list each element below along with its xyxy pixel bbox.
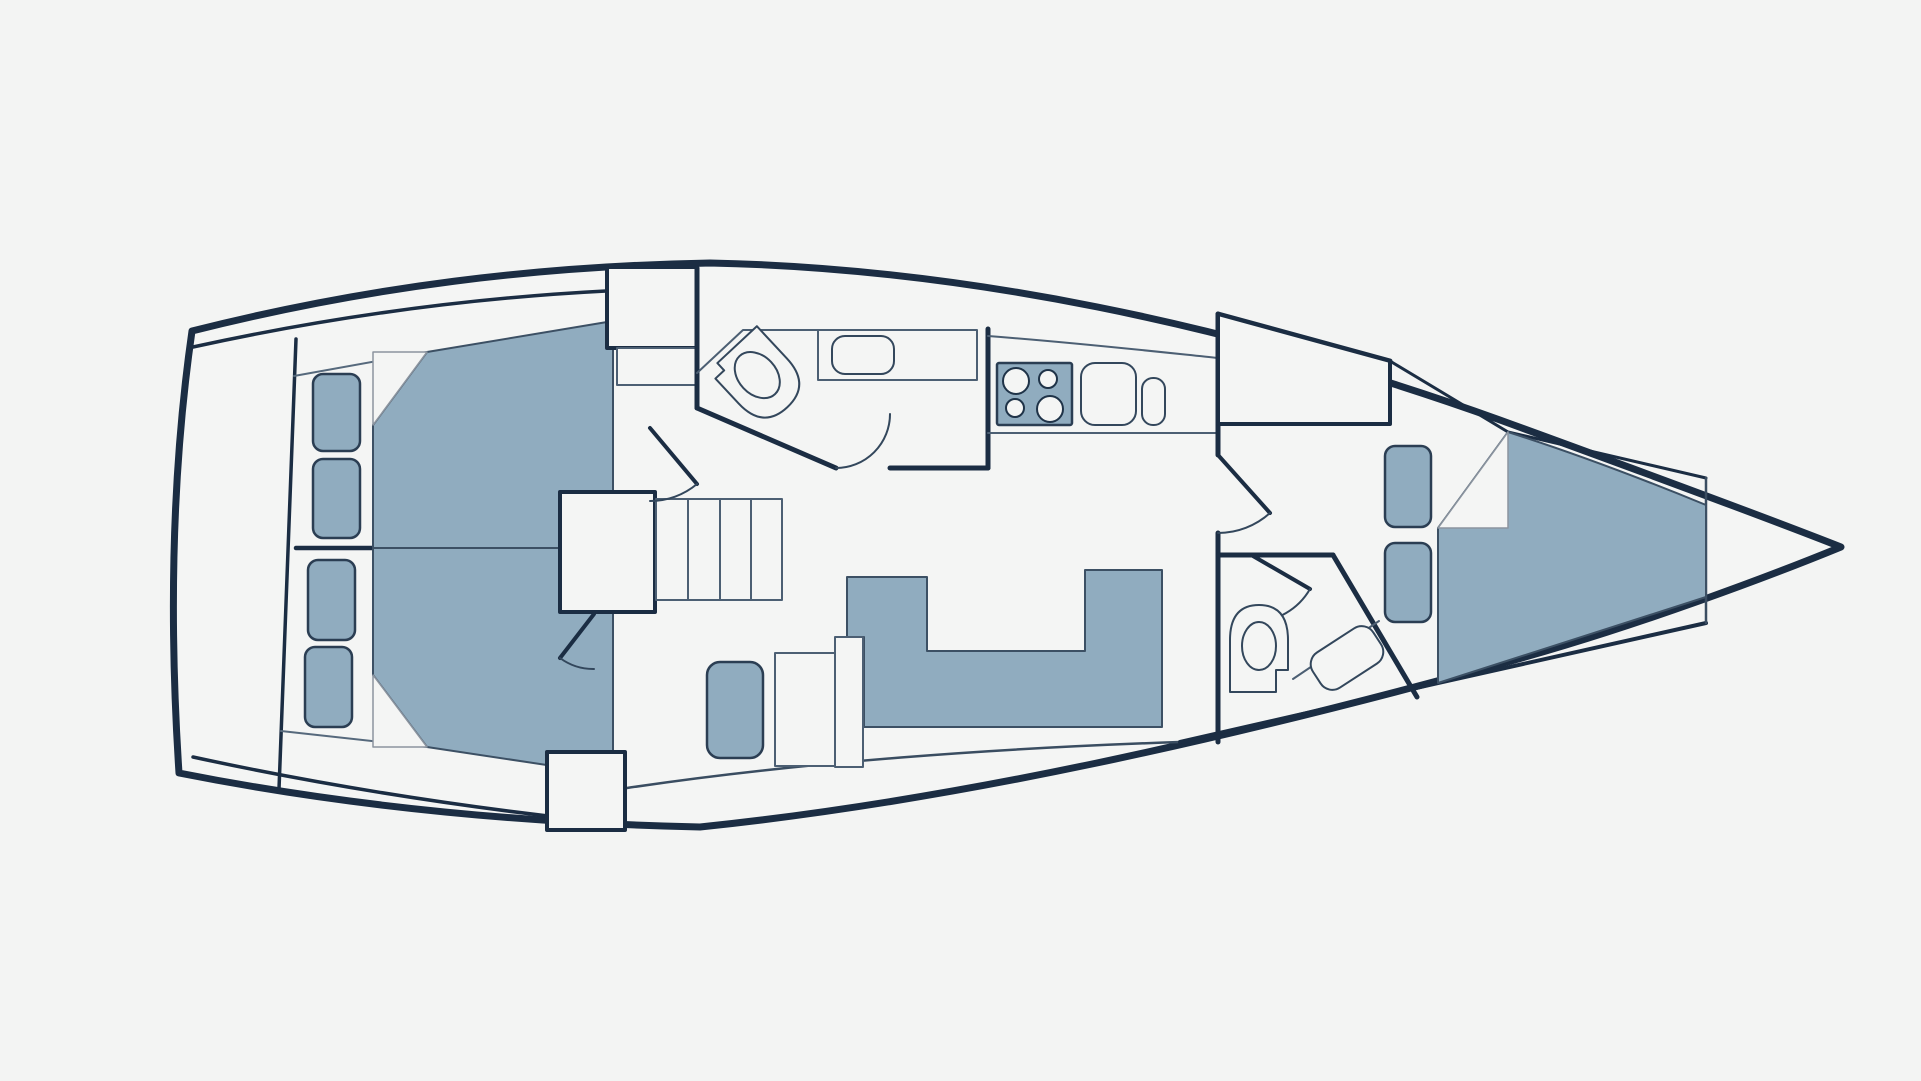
stove-burner-4 xyxy=(1037,396,1063,422)
stove-burner-2 xyxy=(1039,370,1057,388)
salon-table xyxy=(775,653,838,766)
companionway-block xyxy=(547,752,625,830)
wardrobe-aft xyxy=(607,267,697,348)
aft-head-sink xyxy=(832,336,894,374)
wardrobe-forward xyxy=(1218,314,1390,424)
galley-faucet xyxy=(1142,378,1165,425)
locker-cushion-aft-3 xyxy=(308,560,355,640)
yacht-floor-plan-page xyxy=(0,0,1921,1081)
locker-corridor xyxy=(617,348,697,385)
stove-burner-3 xyxy=(1006,399,1024,417)
salon-seat xyxy=(707,662,763,758)
locker-cushion-forward-2 xyxy=(1385,543,1431,622)
companionway-landing xyxy=(560,492,655,612)
stove-burner-1 xyxy=(1003,368,1029,394)
locker-cushion-aft-2 xyxy=(313,459,360,538)
galley-sink xyxy=(1081,363,1136,425)
locker-cushion-forward-1 xyxy=(1385,446,1431,527)
chart-table-strip xyxy=(835,637,863,767)
locker-cushion-aft-1 xyxy=(313,374,360,451)
forward-head-toilet-bowl xyxy=(1242,622,1276,670)
yacht-floor-plan-canvas xyxy=(0,0,1921,1081)
locker-cushion-aft-4 xyxy=(305,647,352,727)
